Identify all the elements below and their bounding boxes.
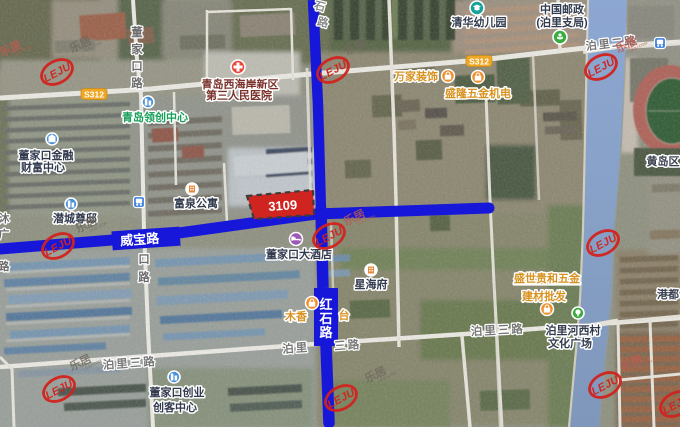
svg-text:董: 董 (131, 25, 143, 39)
svg-text:富泉公寓: 富泉公寓 (174, 196, 218, 210)
svg-text:(泊里支局): (泊里支局) (536, 15, 588, 29)
svg-text:第三人民医院: 第三人民医院 (206, 88, 272, 102)
svg-text:路: 路 (138, 270, 150, 284)
svg-text:广: 广 (0, 227, 10, 241)
svg-text:万家装饰: 万家装饰 (393, 69, 438, 83)
svg-text:港都: 港都 (657, 287, 679, 301)
svg-text:台: 台 (339, 308, 350, 322)
svg-text:3109: 3109 (268, 197, 298, 214)
svg-text:青岛西海岸新区: 青岛西海岸新区 (202, 77, 279, 91)
svg-text:沐: 沐 (0, 211, 11, 225)
svg-text:家: 家 (131, 42, 143, 56)
svg-text:石: 石 (318, 311, 332, 326)
svg-text:清华幼儿园: 清华幼儿园 (452, 15, 507, 29)
svg-text:盛隆五金机电: 盛隆五金机电 (445, 86, 511, 100)
svg-text:口: 口 (138, 253, 150, 266)
svg-text:威宝路: 威宝路 (120, 231, 161, 249)
svg-text:S312: S312 (469, 57, 489, 67)
svg-text:青岛领创中心: 青岛领创中心 (122, 110, 188, 124)
svg-text:创客中心: 创客中心 (152, 400, 197, 414)
svg-text:路: 路 (131, 76, 143, 90)
svg-text:星海府: 星海府 (355, 277, 388, 291)
svg-text:财富中心: 财富中心 (20, 160, 65, 174)
svg-text:董家口金融: 董家口金融 (19, 148, 74, 162)
svg-text:建材批发: 建材批发 (522, 289, 567, 303)
svg-text:黄岛区: 黄岛区 (647, 154, 680, 168)
svg-text:路: 路 (319, 325, 333, 340)
svg-text:中国邮政: 中国邮政 (540, 2, 585, 16)
svg-text:红: 红 (319, 297, 332, 312)
svg-text:泊里河西村: 泊里河西村 (546, 323, 601, 337)
svg-text:董家口创业: 董家口创业 (150, 385, 205, 399)
svg-text:口: 口 (131, 60, 143, 73)
svg-text:路: 路 (0, 259, 11, 273)
svg-text:盛世贵和五金: 盛世贵和五金 (514, 271, 581, 285)
svg-text:文化广场: 文化广场 (548, 336, 592, 350)
svg-text:木香: 木香 (284, 309, 308, 323)
svg-text:S312: S312 (84, 90, 104, 100)
